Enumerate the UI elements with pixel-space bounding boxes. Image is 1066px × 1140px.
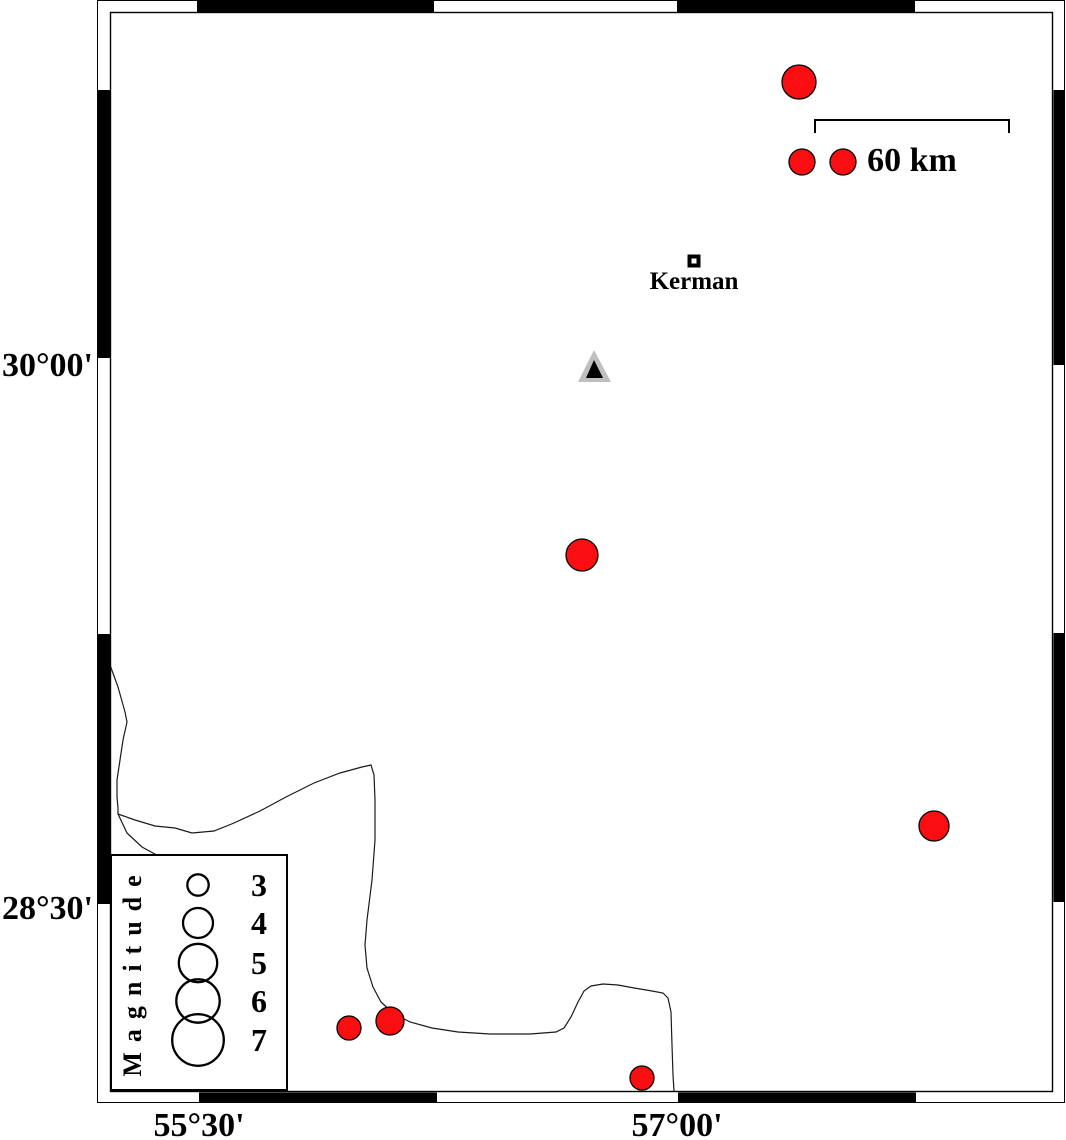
- map-page: Magnitude34567 Kerman 60 km 30°00' 28°30…: [0, 0, 1066, 1140]
- lat-label-28-30: 28°30': [2, 890, 93, 927]
- frame-black-segment-top: [677, 1, 915, 12]
- lon-label-57-00: 57°00': [631, 1107, 722, 1140]
- legend-value-3: 3: [251, 867, 267, 903]
- frame-black-segment-bottom: [199, 1093, 437, 1103]
- earthquake-epicenter: [566, 539, 598, 571]
- city-square-hole: [692, 259, 697, 264]
- earthquake-epicenter: [919, 811, 949, 841]
- legend-value-7: 7: [251, 1022, 267, 1058]
- legend-value-4: 4: [251, 905, 267, 941]
- frame-black-segment-right: [1054, 633, 1065, 902]
- legend-title: Magnitude: [118, 865, 147, 1076]
- earthquake-markers: [337, 65, 949, 1090]
- earthquake-epicenter: [337, 1016, 361, 1040]
- lon-label-55-30: 55°30': [153, 1107, 244, 1140]
- frame-black-segment-left: [98, 634, 110, 904]
- earthquake-epicenter: [376, 1007, 404, 1035]
- frame-black-segment-left: [98, 90, 110, 358]
- legend-value-5: 5: [251, 945, 267, 981]
- city-label: Kerman: [650, 268, 739, 295]
- boundary-line: [110, 665, 160, 857]
- frame-black-segment-top: [197, 1, 434, 12]
- seismicity-map: Magnitude34567 Kerman 60 km 30°00' 28°30…: [0, 0, 1066, 1140]
- earthquake-epicenter: [782, 65, 816, 99]
- frame-black-segment-right: [1054, 90, 1065, 365]
- station-triangle-marker: [578, 350, 611, 382]
- lat-label-30-00: 30°00': [2, 347, 93, 384]
- magnitude-legend: Magnitude34567: [111, 855, 287, 1090]
- scale-bar-bracket: [815, 120, 1009, 133]
- earthquake-epicenter: [789, 149, 815, 175]
- earthquake-epicenter: [830, 149, 856, 175]
- city-marker-kerman: Kerman: [650, 255, 739, 296]
- scale-bar-label: 60 km: [867, 142, 957, 179]
- earthquake-epicenter: [630, 1066, 654, 1090]
- frame-black-segment-bottom: [678, 1093, 916, 1103]
- legend-value-6: 6: [251, 983, 267, 1019]
